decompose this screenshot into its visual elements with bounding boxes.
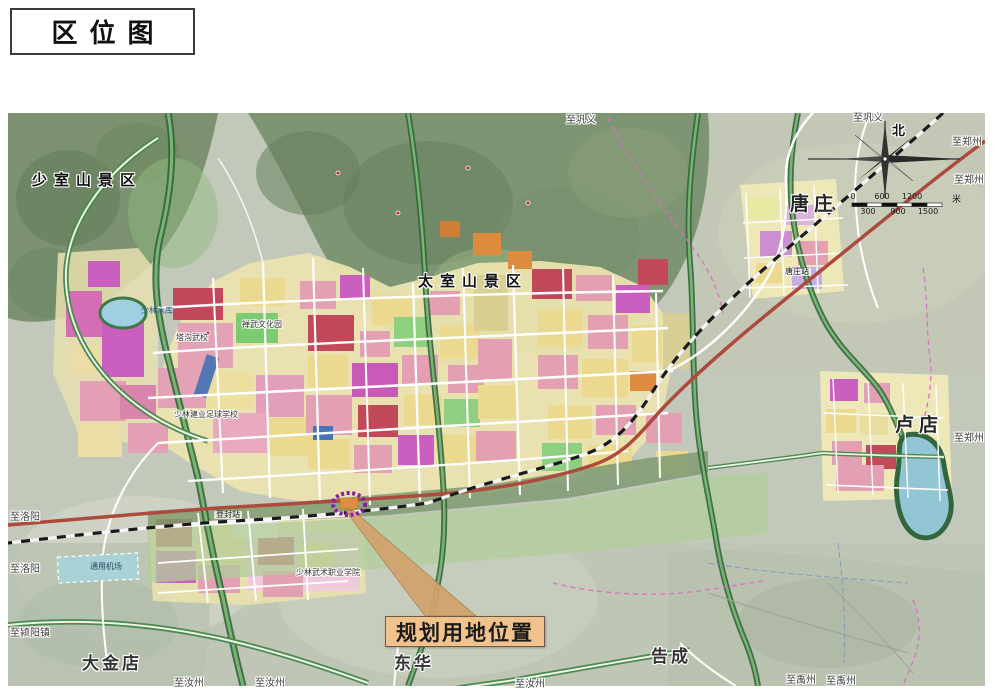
site-label-tagou-school: 塔沟武校 <box>176 334 208 342</box>
edge-label-to-gongyi-1: 至巩义 <box>566 116 596 126</box>
location-map: 少室山景区 太室山景区 唐庄 卢店 大金店 东华 告成 唐庄站 登封站 通用机场… <box>8 113 985 686</box>
site-label-shaolin-reservoir: 少林水库 <box>141 307 173 315</box>
edge-label-to-ruzhou-2: 至汝州 <box>255 679 285 689</box>
site-label-general-airport: 通用机场 <box>90 563 122 571</box>
town-label-ludian: 卢店 <box>895 416 943 435</box>
scale-tick-900: 900 <box>890 208 905 216</box>
scale-unit-label: 米 <box>952 196 961 205</box>
edge-label-to-zhengzhou-3: 至郑州 <box>954 434 984 444</box>
edge-label-to-ruzhou-3: 至汝州 <box>515 680 545 690</box>
edge-label-to-zhengzhou-2: 至郑州 <box>954 176 984 186</box>
site-label-jianye-football-school: 少林建业足球学校 <box>174 411 238 419</box>
scale-tick-300: 300 <box>860 208 875 216</box>
scale-tick-0: 0 <box>850 193 855 201</box>
edge-label-to-luoyang-2: 至洛阳 <box>10 565 40 575</box>
edge-label-to-yuzhou-1: 至禹州 <box>786 676 816 686</box>
scenic-area-label-taishishan: 太室山景区 <box>418 274 528 289</box>
scale-bar <box>852 203 942 207</box>
station-label-tangzhuang: 唐庄站 <box>783 268 811 276</box>
edge-label-to-yingyangzhen: 至颍阳镇 <box>10 629 50 639</box>
scenic-area-label-shaoshishan: 少室山景区 <box>32 173 142 188</box>
town-label-gaocheng: 告成 <box>651 649 691 666</box>
compass-north-label: 北 <box>892 125 905 138</box>
scale-tick-1500: 1500 <box>918 208 938 216</box>
station-label-dengfeng: 登封站 <box>214 511 242 519</box>
site-label-wushu-vocational-college: 少林武术职业学院 <box>296 569 360 577</box>
planning-site-callout: 规划用地位置 <box>385 616 545 647</box>
town-label-dajindian: 大金店 <box>82 656 142 673</box>
site-label-chanwu-culture-park: 禅武文化园 <box>242 321 282 329</box>
town-label-tangzhuang: 唐庄 <box>790 195 838 214</box>
edge-label-to-luoyang-1: 至洛阳 <box>10 513 40 523</box>
scale-tick-1200: 1200 <box>902 193 922 201</box>
page-title: 区位图 <box>10 8 195 55</box>
edge-label-to-ruzhou-1: 至汝州 <box>174 679 204 689</box>
town-label-donghua: 东华 <box>394 656 434 673</box>
edge-label-to-yuzhou-2: 至禹州 <box>826 677 856 687</box>
edge-label-to-gongyi-2: 至巩义 <box>853 114 883 124</box>
edge-label-to-zhengzhou-1: 至郑州 <box>952 138 982 148</box>
scale-tick-600: 600 <box>874 193 889 201</box>
